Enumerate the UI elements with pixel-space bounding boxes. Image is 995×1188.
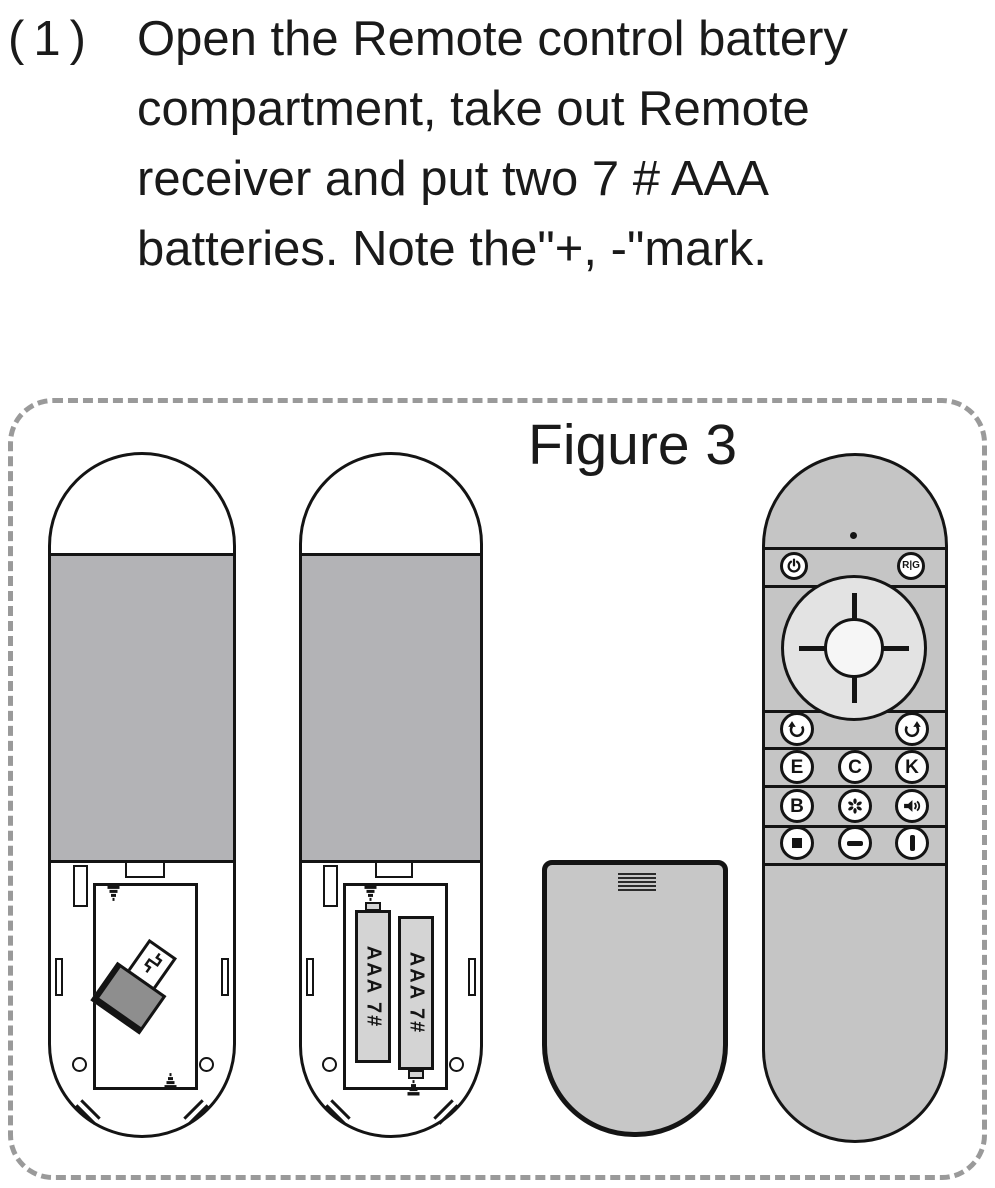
ir-led-icon [850, 532, 857, 539]
rg-button[interactable]: R|G [897, 552, 925, 580]
dpad-left-tick [799, 646, 825, 651]
screw-hole [449, 1057, 464, 1072]
divider [765, 863, 945, 866]
e-button[interactable]: E [780, 750, 814, 784]
dpad-down-tick [852, 677, 857, 703]
back-button[interactable] [780, 712, 814, 746]
instruction-line-4: batteries. Note the"+, -"mark. [137, 214, 995, 284]
c-button-label: C [848, 758, 862, 777]
power-icon [786, 558, 802, 574]
step-number: (1) [8, 4, 95, 74]
ok-button[interactable] [824, 618, 884, 678]
dpad-up-tick [852, 593, 857, 619]
b-button-label: B [790, 797, 804, 816]
side-slot [306, 958, 314, 996]
battery-label: AAA 7# [362, 945, 385, 1027]
remote-back-batteries: AAA 7# AAA 7# [299, 452, 483, 1138]
side-slot [221, 958, 229, 996]
side-slot [468, 958, 476, 996]
c-button[interactable]: C [838, 750, 872, 784]
screw-icon [406, 1079, 421, 1096]
battery-terminal [408, 1070, 424, 1079]
divider [765, 785, 945, 788]
screw-icon [363, 885, 378, 902]
latch-tab [375, 861, 413, 878]
screw-hole [72, 1057, 87, 1072]
instruction-lines: Open the Remote control battery compartm… [137, 4, 995, 284]
figure-caption: Figure 3 [528, 417, 737, 474]
b-button[interactable]: B [780, 789, 814, 823]
dpad-right-tick [883, 646, 909, 651]
apps-button[interactable] [838, 789, 872, 823]
rg-button-label: R|G [902, 561, 920, 571]
instruction-line-1: Open the Remote control battery [137, 4, 995, 74]
screw-hole [199, 1057, 214, 1072]
side-slot [55, 958, 63, 996]
back-panel [299, 553, 483, 863]
refresh-button[interactable] [895, 712, 929, 746]
k-button[interactable]: K [895, 750, 929, 784]
back-panel [48, 553, 236, 863]
battery-aaa: AAA 7# [355, 910, 391, 1063]
screw-hole [322, 1057, 337, 1072]
dpad[interactable] [781, 575, 927, 721]
grip-ridges-icon [618, 873, 656, 891]
battery-cover [542, 860, 728, 1137]
divider [765, 547, 945, 550]
latch-slot [73, 865, 88, 907]
speaker-volume-icon [902, 796, 922, 816]
flower-icon [845, 796, 865, 816]
e-button-label: E [791, 758, 804, 777]
latch-tab [125, 861, 165, 878]
volume-down-button[interactable] [838, 826, 872, 860]
battery-aaa: AAA 7# [398, 916, 434, 1070]
square-icon [792, 838, 802, 848]
k-button-label: K [905, 758, 919, 777]
manual-page: (1) Open the Remote control battery comp… [0, 0, 995, 1188]
screw-icon [106, 885, 121, 902]
instruction-line-2: compartment, take out Remote [137, 74, 995, 144]
refresh-icon [902, 719, 922, 739]
remote-back-receiver [48, 452, 236, 1138]
minus-icon [847, 841, 863, 846]
bar-icon [910, 835, 915, 851]
mouse-button[interactable] [780, 826, 814, 860]
volume-up-button[interactable] [895, 826, 929, 860]
remote-front: R|G E C K B [762, 453, 948, 1143]
battery-label: AAA 7# [405, 952, 428, 1034]
voice-button[interactable] [895, 789, 929, 823]
power-button[interactable] [780, 552, 808, 580]
screw-icon [163, 1072, 178, 1089]
instruction-line-3: receiver and put two 7 # AAA [137, 144, 995, 214]
back-arrow-icon [787, 719, 807, 739]
latch-slot [323, 865, 338, 907]
